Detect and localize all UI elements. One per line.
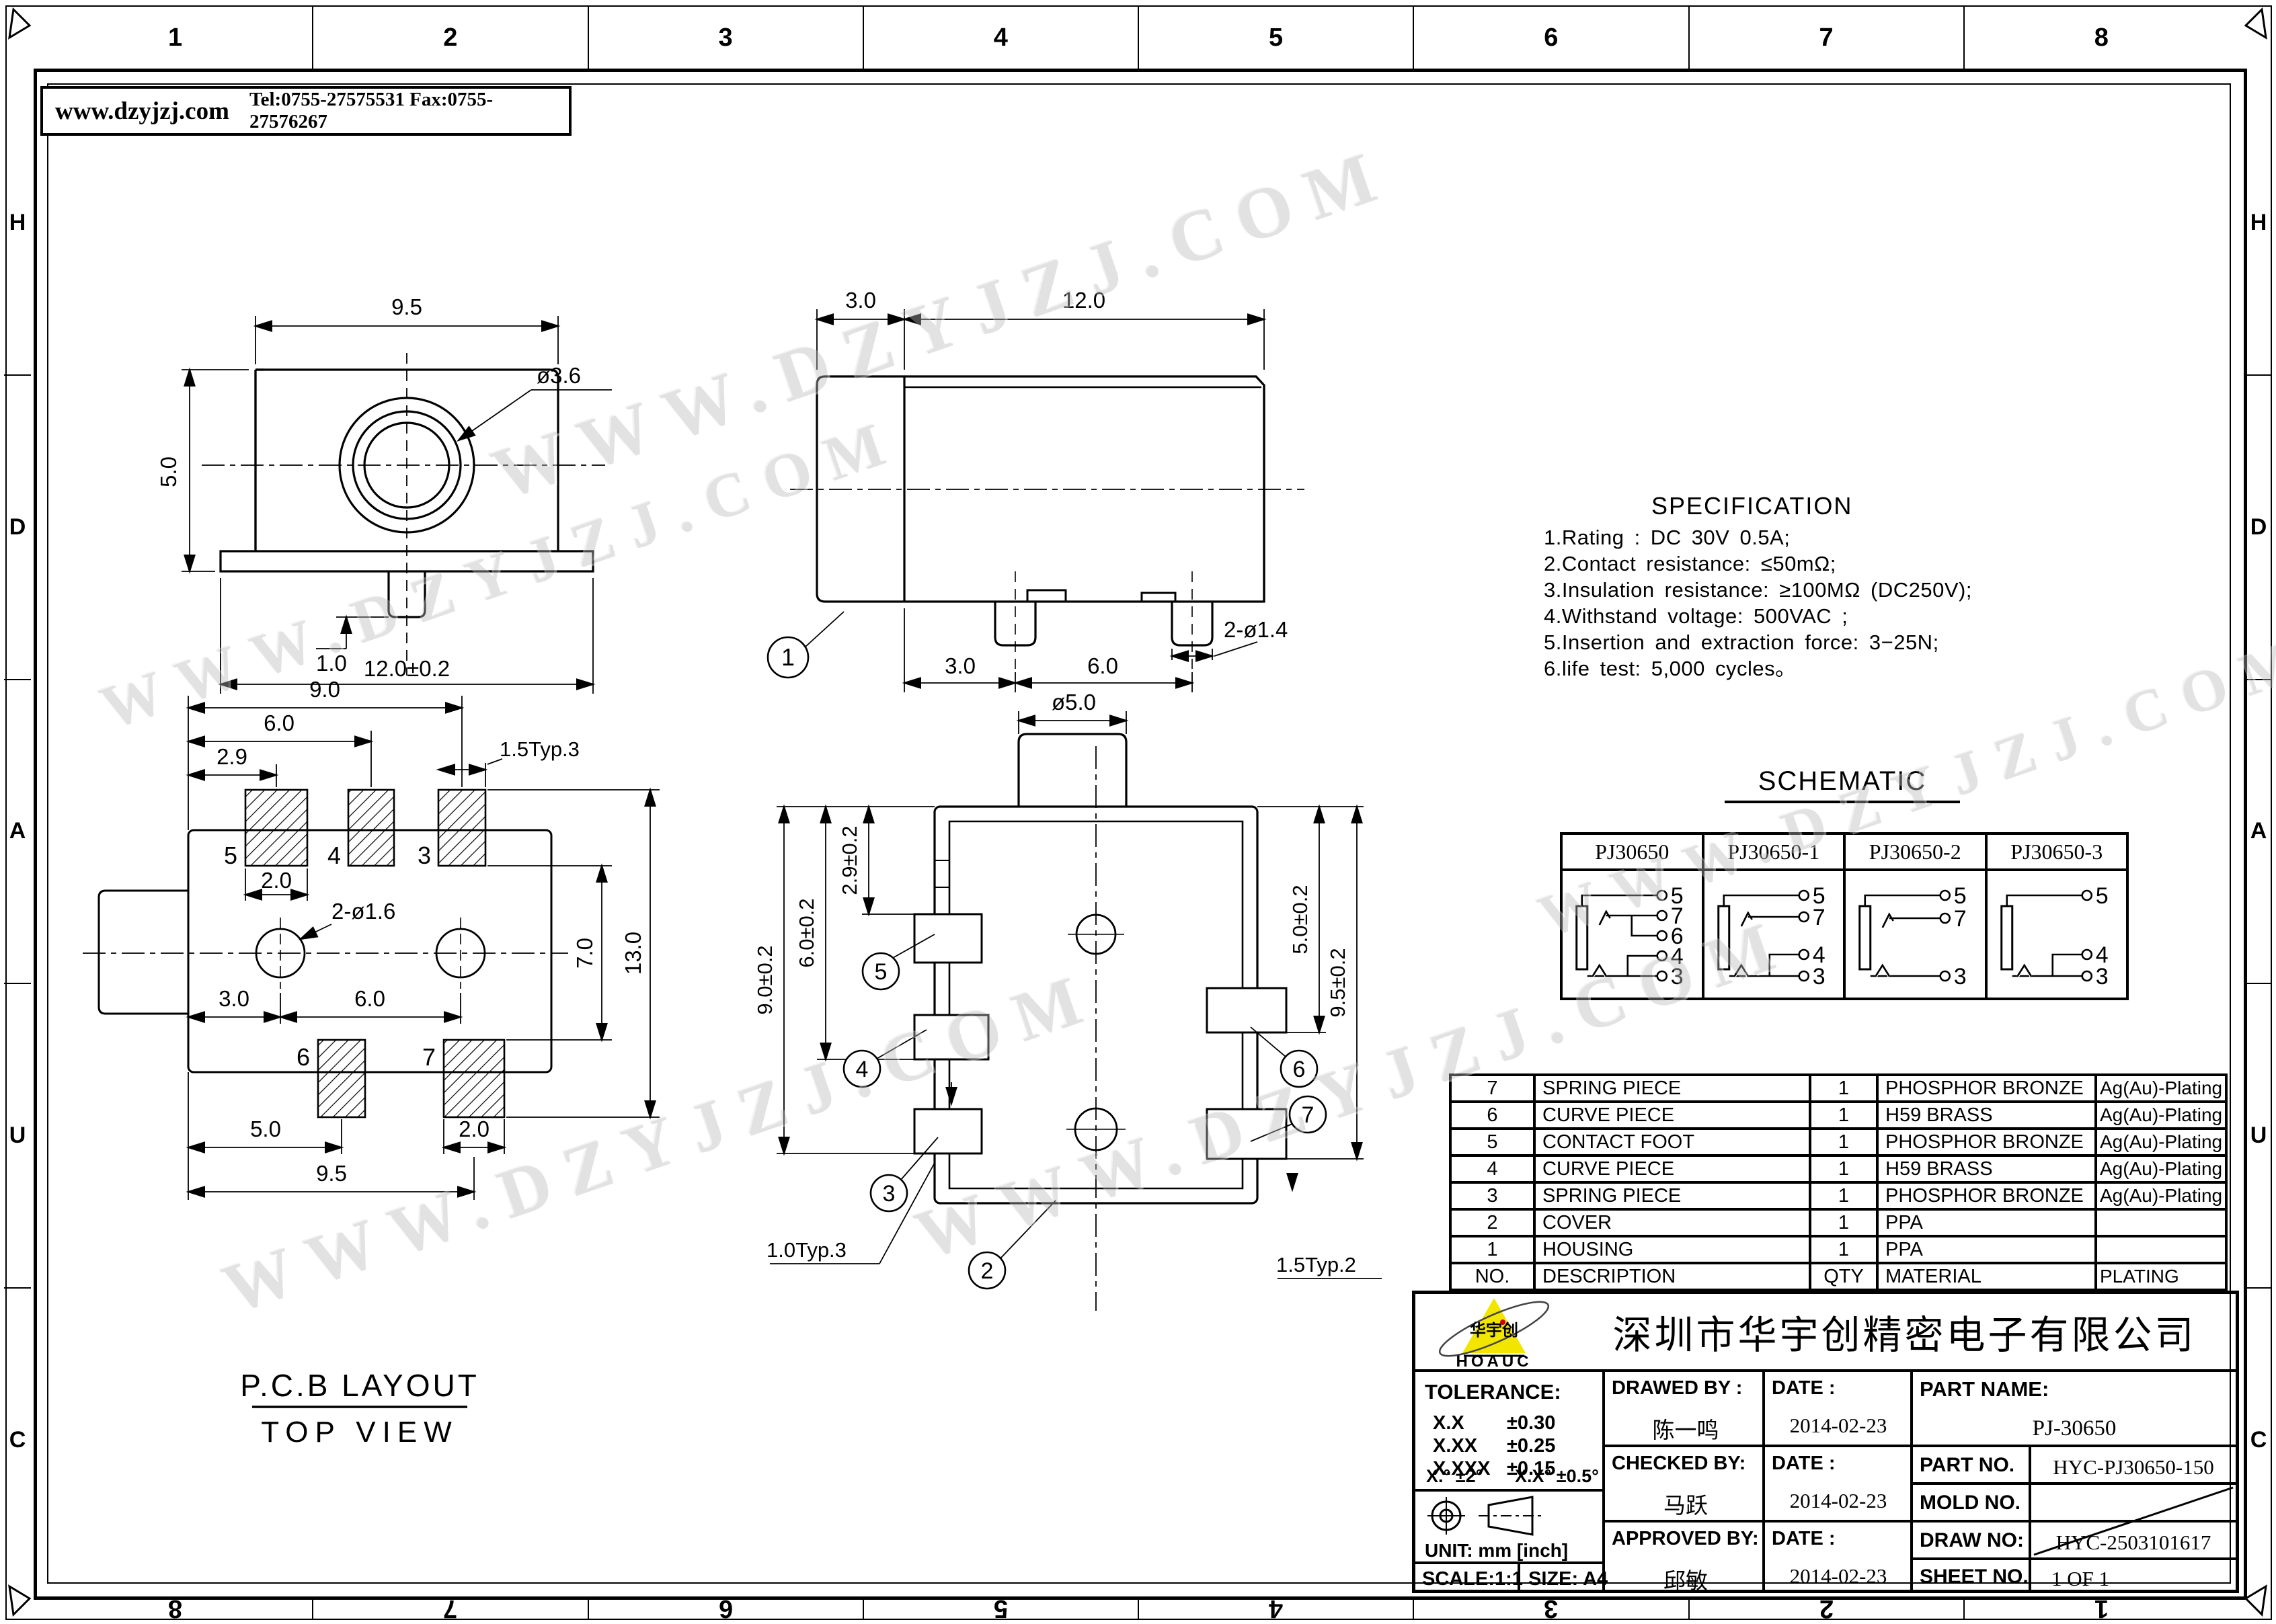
dim-label: 1.0Typ.3 [767, 1238, 847, 1262]
dim-label: 6.0 [264, 710, 295, 735]
corner-mark-icon [7, 5, 42, 40]
tol-angle-a: X.° ±2° [1426, 1466, 1483, 1486]
col-header-plating: PLATING [2096, 1263, 2226, 1290]
date-label: DATE : [1772, 1528, 1836, 1550]
part-qty: 1 [1810, 1236, 1877, 1263]
part-description: SPRING PIECE [1534, 1182, 1810, 1209]
part-description: SPRING PIECE [1534, 1075, 1810, 1102]
part-qty: 1 [1810, 1075, 1877, 1102]
date-value: 2014-02-23 [1769, 1489, 1908, 1513]
balloon-5: 5 [875, 959, 888, 985]
schematic-circuit: 5 7 3 [1846, 871, 1985, 998]
dim-label: 2.9 [217, 744, 247, 769]
pad-label: 5 [224, 842, 237, 869]
part-plating: Ag(Au)-Plating [2096, 1129, 2226, 1155]
pin-label: 7 [1954, 906, 1967, 932]
zone-number: 2 [443, 24, 457, 52]
schematic-circuit: 5 7 6 4 3 [1563, 871, 1702, 998]
part-material: H59 BRASS [1877, 1155, 2096, 1182]
dim-label: 6.0 [354, 986, 385, 1011]
col-header-material: MATERIAL [1877, 1263, 2096, 1290]
variant-name: PJ30650 [1563, 835, 1702, 871]
specification-title: SPECIFICATION [1651, 492, 2243, 520]
part-plating: Ag(Au)-Plating [2096, 1155, 2226, 1182]
spec-item: 3.Insulation resistance: ≥100MΩ (DC250V)… [1544, 577, 2243, 603]
table-row: 6 CURVE PIECE 1 H59 BRASS Ag(Au)-Plating [1450, 1102, 2226, 1129]
part-qty: 1 [1810, 1155, 1877, 1182]
drawn-by-name: 陈一鸣 [1610, 1412, 1761, 1445]
part-no: 1 [1450, 1236, 1534, 1263]
zone-number: 8 [2094, 24, 2109, 52]
variant-name: PJ30650-2 [1846, 835, 1985, 871]
date-value: 2014-02-23 [1769, 1564, 1908, 1588]
pad-label: 4 [327, 842, 341, 869]
part-qty: 1 [1810, 1182, 1877, 1209]
tol-key: X.X [1433, 1412, 1507, 1434]
specification-block: SPECIFICATION 1.Rating : DC 30V 0.5A; 2.… [1544, 492, 2243, 682]
part-material: PHOSPHOR BRONZE [1877, 1182, 2096, 1209]
tol-val: ±0.30 [1507, 1412, 1555, 1434]
part-qty: 1 [1810, 1102, 1877, 1129]
balloon-6: 6 [1293, 1057, 1306, 1082]
table-row: 2 COVER 1 PPA [1450, 1209, 2226, 1236]
zone-letter: A [4, 680, 31, 985]
part-no: 4 [1450, 1155, 1534, 1182]
draw-no-value: HYC-2503101617 [2031, 1531, 2236, 1555]
pad-label: 6 [297, 1043, 310, 1071]
size-label: SIZE: A4 [1528, 1568, 1608, 1590]
table-row: 1 HOUSING 1 PPA [1450, 1236, 2226, 1263]
projection-symbol-icon [1425, 1496, 1593, 1537]
col-header-description: DESCRIPTION [1534, 1263, 1810, 1290]
company-name: 深圳市华宇创精密电子有限公司 [1573, 1294, 2236, 1369]
svg-text:华宇创: 华宇创 [1470, 1321, 1518, 1340]
zone-letter: H [2245, 71, 2272, 376]
approved-by-name: 邱敏 [1610, 1563, 1761, 1595]
website-text: www.dzyjzj.com [55, 97, 229, 126]
tol-angle-b: X.X° ±0.5° [1515, 1466, 1599, 1486]
front-view-drawing: 9.5 ø3.6 5.0 1.0 12.0±0.2 [114, 282, 625, 699]
pin-label: 5 [2095, 883, 2108, 909]
draw-no-label: DRAW NO: [1920, 1529, 2024, 1552]
corner-mark-icon [2234, 5, 2269, 40]
spec-item: 4.Withstand voltage: 500VAC ; [1544, 603, 2243, 629]
dim-label: ø5.0 [1052, 692, 1096, 715]
part-material: PHOSPHOR BRONZE [1877, 1075, 2096, 1102]
part-no: 3 [1450, 1182, 1534, 1209]
part-name-value: PJ-30650 [1913, 1416, 2236, 1441]
part-material: PPA [1877, 1209, 2096, 1236]
zone-number: 1 [168, 24, 182, 52]
dim-label: 9.5 [391, 294, 422, 319]
drawn-by-label: DRAWED BY : [1612, 1377, 1742, 1399]
svg-text:HOAUC: HOAUC [1456, 1352, 1532, 1368]
balloon-7: 7 [1302, 1102, 1314, 1128]
schematic-variant: PJ30650 5 7 6 4 3 [1563, 835, 1704, 998]
dim-label: 2-ø1.4 [1224, 617, 1288, 642]
pcb-subtitle: TOP VIEW [261, 1416, 459, 1449]
approved-by-label: APPROVED BY: [1612, 1528, 1759, 1550]
scale-label: SCALE:1:1 [1422, 1568, 1523, 1590]
checked-by-label: CHECKED BY: [1612, 1453, 1745, 1475]
zone-letter: C [2245, 1289, 2272, 1592]
part-description: HOUSING [1534, 1236, 1810, 1263]
balloon-3: 3 [883, 1181, 896, 1207]
pad-label: 3 [418, 842, 431, 869]
pin-label: 3 [1671, 964, 1684, 989]
company-logo-icon: 华宇创 HOAUC [1423, 1295, 1568, 1368]
part-no-label: PART NO. [1920, 1454, 2014, 1477]
dim-label: 7.0 [572, 938, 597, 969]
title-block: 华宇创 HOAUC 深圳市华宇创精密电子有限公司 TOLERANCE: X.X±… [1412, 1291, 2239, 1593]
border-zone-right: H D A U C [2245, 71, 2272, 1592]
parts-table: 7 SPRING PIECE 1 PHOSPHOR BRONZE Ag(Au)-… [1449, 1073, 2228, 1291]
dim-label: 3.0 [945, 653, 976, 678]
checked-by-name: 马跃 [1610, 1488, 1761, 1520]
spec-item: 2.Contact resistance: ≤50mΩ; [1544, 551, 2243, 577]
col-header-no: NO. [1450, 1263, 1534, 1290]
dim-label: 9.0 [309, 677, 340, 702]
balloon-2: 2 [981, 1258, 994, 1284]
date-value: 2014-02-23 [1769, 1414, 1908, 1438]
zone-number: 4 [994, 24, 1008, 52]
part-qty: 1 [1810, 1209, 1877, 1236]
table-header-row: NO. DESCRIPTION QTY MATERIAL PLATING [1450, 1263, 2226, 1290]
drawing-sheet: 1 2 3 4 5 6 7 8 8 7 6 5 4 3 2 1 H D A U … [0, 0, 2276, 1624]
sheet-no-label: SHEET NO. [1920, 1566, 2029, 1588]
zone-letter: D [2245, 376, 2272, 680]
schematic-title: SCHEMATIC [1725, 766, 1960, 803]
dim-label: 6.0 [1087, 653, 1118, 678]
zone-letter: H [4, 71, 31, 376]
schematic-variant: PJ30650-3 5 4 3 [1988, 835, 2127, 998]
dim-label: 1.5Typ.3 [500, 737, 580, 761]
part-material: PPA [1877, 1236, 2096, 1263]
col-header-qty: QTY [1810, 1263, 1877, 1290]
zone-letter: C [4, 1289, 31, 1592]
dim-label: 9.5±0.2 [1326, 948, 1349, 1017]
part-no: 6 [1450, 1102, 1534, 1129]
part-no-value: HYC-PJ30650-150 [2031, 1455, 2236, 1479]
header-contact-box: www.dzyjzj.com Tel:0755-27575531 Fax:075… [40, 86, 572, 136]
part-material: PHOSPHOR BRONZE [1877, 1129, 2096, 1155]
part-name-label: PART NAME: [1920, 1377, 2049, 1402]
border-zone-bottom: 8 7 6 5 4 3 2 1 [38, 1597, 2238, 1619]
balloon-1: 1 [781, 643, 795, 671]
top-view-drawing: ø5.0 2.9±0.2 6.0±0.2 9.0±0.2 [713, 692, 1392, 1331]
part-material: H59 BRASS [1877, 1102, 2096, 1129]
table-row: 4 CURVE PIECE 1 H59 BRASS Ag(Au)-Plating [1450, 1155, 2226, 1182]
part-qty: 1 [1810, 1129, 1877, 1155]
spec-item: 6.life test: 5,000 cycles。 [1544, 655, 2243, 682]
part-plating: Ag(Au)-Plating [2096, 1102, 2226, 1129]
part-no: 7 [1450, 1075, 1534, 1102]
schematic-variant: PJ30650-1 5 7 4 3 [1704, 835, 1846, 998]
pin-label: 5 [1954, 883, 1967, 909]
dim-label: 5.0 [156, 456, 181, 487]
part-plating: Ag(Au)-Plating [2096, 1075, 2226, 1102]
part-description: CONTACT FOOT [1534, 1129, 1810, 1155]
balloon-4: 4 [856, 1057, 869, 1082]
zone-letter: U [4, 984, 31, 1289]
tolerance-title: TOLERANCE: [1425, 1380, 1561, 1404]
side-view-drawing: 3.0 12.0 1 3.0 6.0 2-ø1.4 [726, 276, 1331, 706]
zone-letter: D [4, 376, 31, 680]
schematic-circuit: 5 7 4 3 [1704, 871, 1844, 998]
date-label: DATE : [1772, 1377, 1836, 1399]
schematic-circuit: 5 4 3 [1988, 871, 2127, 998]
mold-no-label: MOLD NO. [1920, 1492, 2020, 1514]
pcb-layout-drawing: 5 4 3 6 7 9.0 6.0 2.9 1.5Typ.3 2.0 2-ø1.… [64, 669, 709, 1452]
dim-label: ø3.6 [537, 363, 581, 388]
dim-label: 3.0 [845, 288, 876, 313]
dim-label: 1.5Typ.2 [1276, 1253, 1356, 1276]
table-row: 3 SPRING PIECE 1 PHOSPHOR BRONZE Ag(Au)-… [1450, 1182, 2226, 1209]
zone-letter: A [2245, 680, 2272, 985]
zone-number: 5 [1269, 24, 1283, 52]
dim-label: 5.0±0.2 [1288, 885, 1312, 954]
tol-key: X.XX [1433, 1435, 1507, 1457]
dim-label: 2-ø1.6 [331, 899, 395, 924]
pcb-title: P.C.B LAYOUT [240, 1368, 479, 1403]
zone-letter: U [2245, 984, 2272, 1289]
pin-label: 3 [2095, 964, 2108, 989]
dim-label: 12.0 [1062, 288, 1105, 313]
part-no: 5 [1450, 1129, 1534, 1155]
dim-label: 5.0 [250, 1116, 281, 1141]
pin-label: 7 [1812, 905, 1825, 930]
part-plating: Ag(Au)-Plating [2096, 1182, 2226, 1209]
dim-label: 2.0 [459, 1116, 489, 1141]
dim-label: 3.0 [219, 986, 249, 1011]
pad-label: 7 [422, 1043, 436, 1071]
zone-number: 3 [719, 24, 733, 52]
part-no: 2 [1450, 1209, 1534, 1236]
sheet-no-value: 1 OF 1 [2051, 1567, 2109, 1591]
variant-name: PJ30650-3 [1988, 835, 2127, 871]
spec-item: 5.Insertion and extraction force: 3−25N; [1544, 629, 2243, 655]
dim-label: 13.0 [621, 932, 645, 975]
table-row: 7 SPRING PIECE 1 PHOSPHOR BRONZE Ag(Au)-… [1450, 1075, 2226, 1102]
dim-label: 2.9±0.2 [838, 825, 861, 895]
pin-label: 3 [1954, 964, 1967, 989]
date-label: DATE : [1772, 1453, 1836, 1475]
zone-number: 6 [1544, 24, 1558, 52]
part-plating [2096, 1209, 2226, 1236]
part-description: CURVE PIECE [1534, 1102, 1810, 1129]
dim-label: 9.5 [316, 1161, 347, 1186]
spec-item: 1.Rating : DC 30V 0.5A; [1544, 524, 2243, 551]
schematic-table: PJ30650 5 7 6 4 3 [1560, 832, 2129, 1000]
table-row: 5 CONTACT FOOT 1 PHOSPHOR BRONZE Ag(Au)-… [1450, 1129, 2226, 1155]
unit-label: UNIT: mm [inch] [1425, 1540, 1568, 1561]
schematic-variant: PJ30650-2 5 7 3 [1846, 835, 1988, 998]
part-description: COVER [1534, 1209, 1810, 1236]
dim-label: 6.0±0.2 [795, 898, 818, 967]
zone-number: 7 [1819, 24, 1834, 52]
part-description: CURVE PIECE [1534, 1155, 1810, 1182]
pin-label: 3 [1812, 964, 1825, 989]
tol-val: ±0.25 [1507, 1435, 1555, 1457]
border-zone-left: H D A U C [4, 71, 31, 1592]
variant-name: PJ30650-1 [1704, 835, 1844, 871]
dim-label: 9.0±0.2 [753, 945, 777, 1014]
border-zone-top: 1 2 3 4 5 6 7 8 [38, 7, 2238, 69]
contact-text: Tel:0755-27575531 Fax:0755-27576267 [249, 89, 569, 133]
dim-label: 2.0 [261, 868, 292, 893]
part-plating [2096, 1236, 2226, 1263]
